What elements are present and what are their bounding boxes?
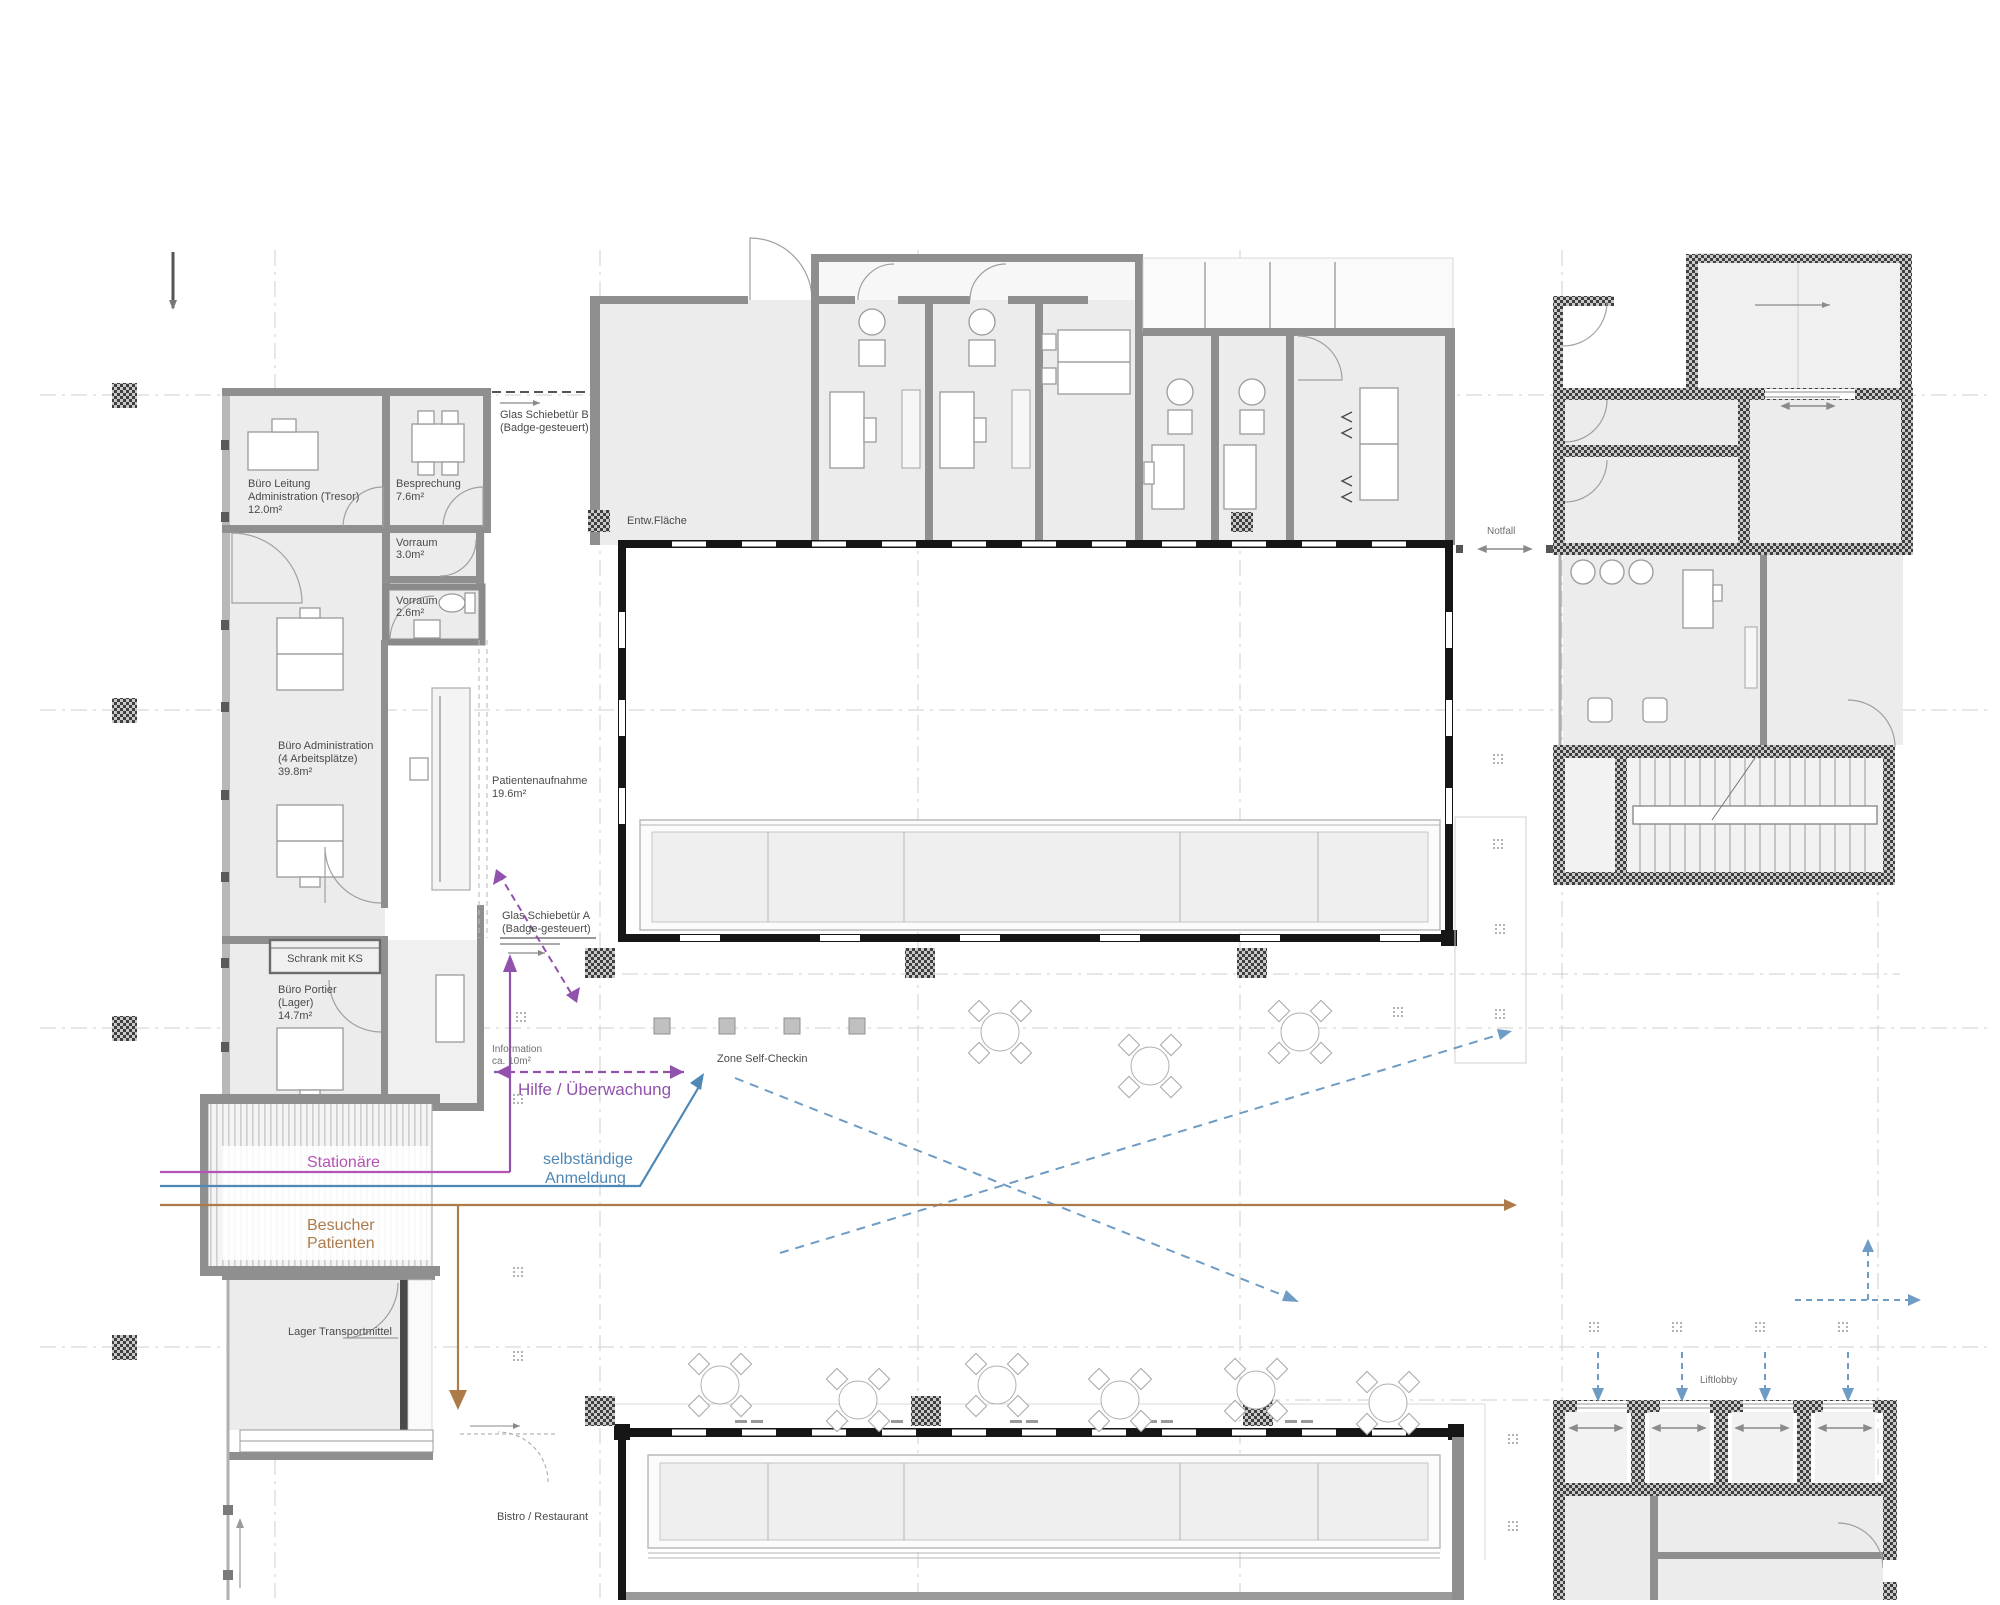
grid-marker-icon [112, 383, 137, 1360]
patientenaufnahme-counter [410, 688, 470, 890]
info-desk [436, 975, 464, 1042]
label-bistro-restaurant: Bistro / Restaurant [497, 1511, 588, 1523]
column-icon [585, 1396, 615, 1426]
lobby-edge-outline [1455, 817, 1526, 1063]
label-liftlobby: Liftlobby [1700, 1375, 1737, 1386]
notfall-passage [1456, 545, 1553, 553]
label-lager-transportmittel: Lager Transportmittel [288, 1326, 392, 1338]
room-label-patientenaufnahme: Patientenaufnahme 19.6m² [492, 775, 590, 800]
column-icon [1237, 948, 1267, 978]
bistro-counter [648, 1455, 1440, 1558]
route-label-besucher: Besucher Patienten [307, 1217, 379, 1252]
exam-rooms-right [1143, 258, 1455, 545]
anmeldung-counter [640, 820, 1440, 930]
column-icon [905, 948, 935, 978]
central-hall [500, 540, 1457, 978]
cafe-tables [688, 1000, 1419, 1434]
route-label-stationaere: Stationäre [307, 1154, 380, 1171]
column-icon [585, 948, 615, 978]
stairwell [1553, 745, 1895, 885]
glas-schiebetuer-a-door [500, 938, 596, 956]
door-label-glas-a: Glas Schiebetür A (Badge-gesteuert) [502, 910, 593, 935]
floor-plan-drawing: Büro Leitung Administration (Tresor) 12.… [0, 0, 2000, 1600]
waiting-chairs [1571, 560, 1653, 584]
route-label-selbstaendige: selbständige Anmeldung [543, 1151, 637, 1187]
sink-icon [1239, 379, 1265, 405]
sink-icon [859, 309, 885, 335]
glas-schiebetuer-b-door [492, 392, 588, 406]
desk-portier [277, 1028, 343, 1100]
self-checkin-kiosks [654, 1018, 865, 1034]
lift-block [1553, 1400, 1897, 1600]
hall-side-windows [619, 612, 1452, 824]
door-label-glas-b: Glas Schiebetür B (Badge-gesteuert) [500, 409, 592, 434]
label-schrank-mit-ks: Schrank mit KS [287, 953, 363, 965]
bistro-entrance-door [460, 1432, 556, 1482]
column-icon [588, 510, 610, 532]
column-icon [1231, 512, 1253, 532]
route-label-hilfe: Hilfe / Überwachung [518, 1080, 671, 1099]
exam-rooms-top [811, 254, 1143, 545]
label-notfall: Notfall [1487, 526, 1515, 537]
sink-icon [969, 309, 995, 335]
bistro-block [460, 1396, 1485, 1600]
label-entw-flaeche: Entw.Fläche [627, 515, 687, 527]
bistro-window-ticks [735, 1420, 1313, 1423]
label-information: Information ca. 10m² [492, 1044, 545, 1067]
route-wayfinding-dashed [735, 1029, 1921, 1402]
label-zone-self-checkin: Zone Self-Checkin [717, 1053, 808, 1065]
right-wing [1553, 254, 1913, 885]
column-icon [911, 1396, 941, 1426]
sink-icon [1167, 379, 1193, 405]
floor-plan-page: Büro Leitung Administration (Tresor) 12.… [0, 0, 2000, 1600]
